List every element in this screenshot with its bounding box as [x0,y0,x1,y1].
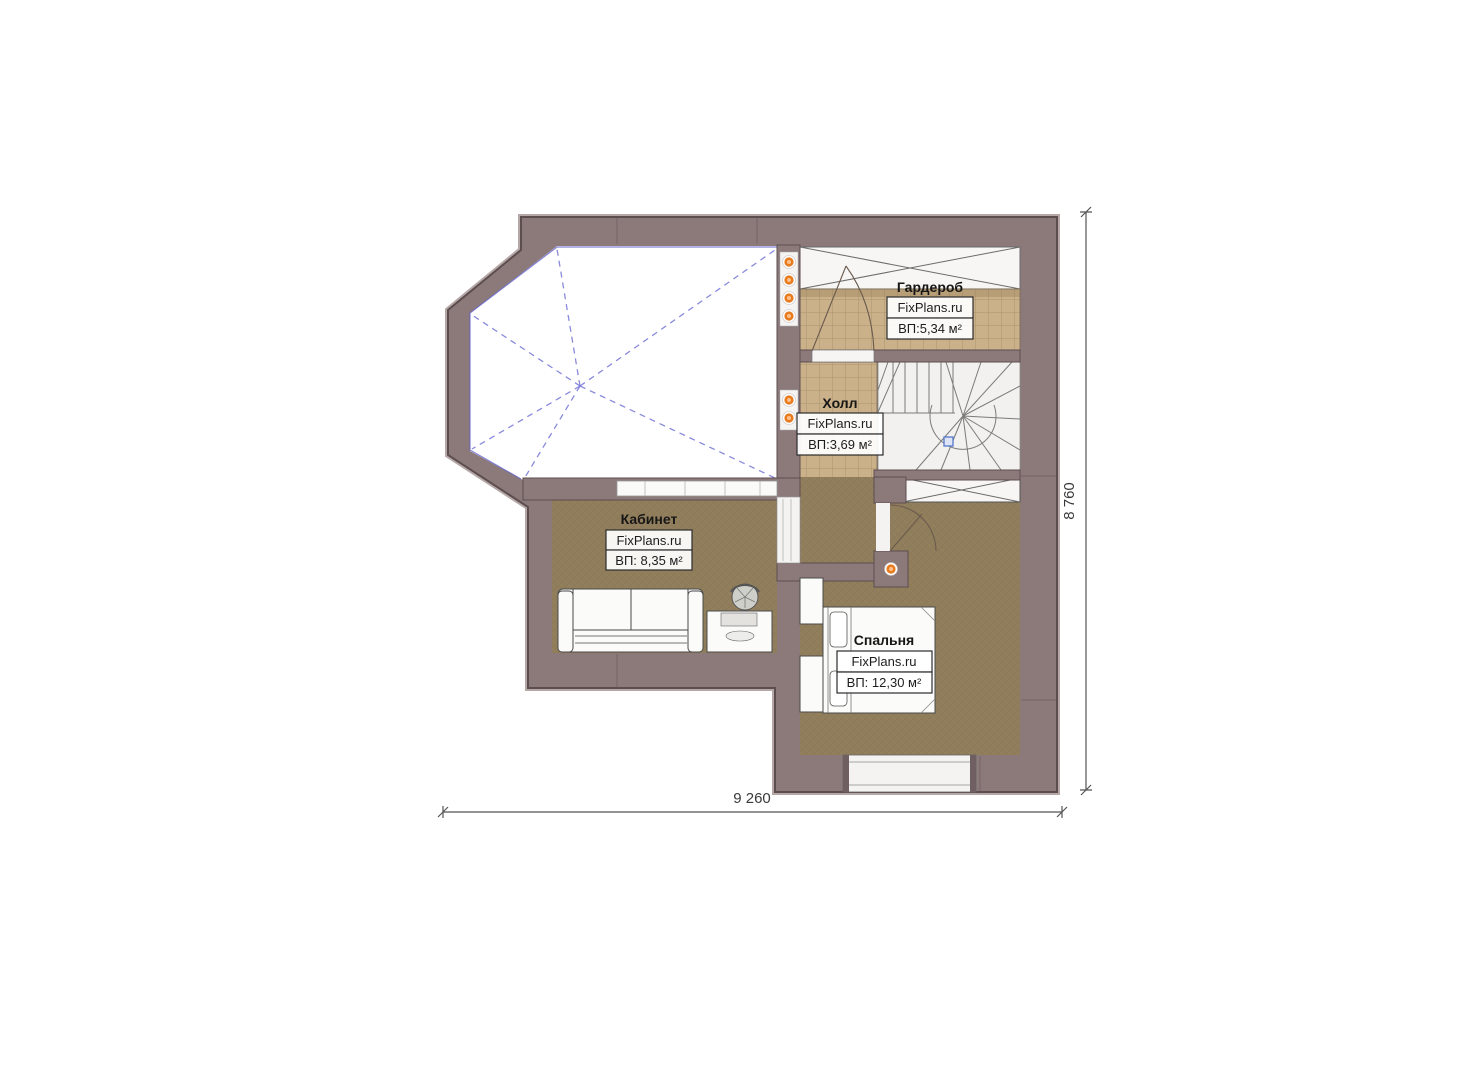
sofa-armrest-right [688,591,703,652]
wall-closet-stub [874,477,906,503]
floor-plan-page: Гардероб FixPlans.ru ВП:5,34 м² Холл Fix… [0,0,1474,1080]
nightstand-bottom [800,656,823,712]
staircase [878,362,1020,470]
sofa-cushion-left [573,589,631,630]
window-jamb-right [970,755,976,792]
stair-marker [944,437,953,446]
sofa-armrest-left [558,591,573,652]
bedroom-watermark-text: FixPlans.ru [851,654,916,669]
hall-name-label: Холл [822,395,857,411]
wardrobe-name-label: Гардероб [897,279,964,295]
staircase-area [878,362,1020,470]
sofa-cushion-right [631,589,688,630]
office-name-label: Кабинет [621,511,678,527]
dim-bottom-value: 9 260 [733,790,771,807]
wall-corridor-bedroom [777,563,880,581]
wardrobe-door-threshold [812,350,874,362]
floor-plan-canvas: Гардероб FixPlans.ru ВП:5,34 м² Холл Fix… [0,0,1474,1080]
wardrobe-area-text: ВП:5,34 м² [898,321,962,336]
furniture-sofa [558,589,703,652]
bedroom-door-threshold [876,503,890,551]
dim-right-value: 8 760 [1061,482,1078,520]
wardrobe-label: Гардероб FixPlans.ru ВП:5,34 м² [887,279,973,339]
wardrobe-watermark-text: FixPlans.ru [897,300,962,315]
office-void-window [617,481,777,496]
bedroom-area-text: ВП: 12,30 м² [847,675,922,690]
office-watermark-text: FixPlans.ru [616,533,681,548]
void-floor [470,246,777,480]
office-door-opening [777,497,800,563]
understairs-closet [903,478,1020,502]
desk-keyboard [721,613,757,626]
window-frame [843,755,976,792]
hall-watermark-text: FixPlans.ru [807,416,872,431]
dimension-right: 8 760 [1061,207,1092,795]
bedroom-window [843,755,976,792]
window-jamb-left [843,755,849,792]
nightstand-top [800,578,823,624]
bed-pillow-top [830,612,847,647]
void-space [470,246,777,480]
office-door [777,497,800,563]
office-area-text: ВП: 8,35 м² [615,553,683,568]
desk-mouse-tray [726,631,754,641]
knee-window-band [617,481,777,496]
bedroom-name-label: Спальня [854,632,914,648]
hall-area-text: ВП:3,69 м² [808,437,872,452]
